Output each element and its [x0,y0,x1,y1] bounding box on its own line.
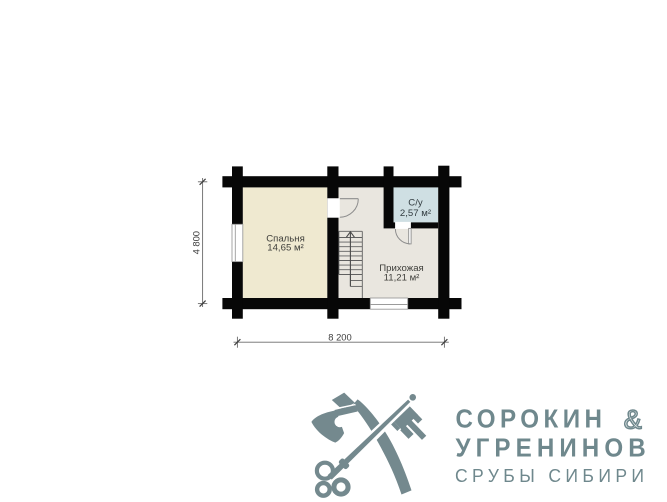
svg-text:4 800: 4 800 [190,231,201,254]
svg-text:СРУБЫ СИБИРИ: СРУБЫ СИБИРИ [455,465,644,486]
svg-text:2,57 м²: 2,57 м² [400,208,432,219]
svg-text:11,21 м²: 11,21 м² [384,272,421,283]
svg-text:&: & [624,404,642,434]
svg-text:СОРОКИН: СОРОКИН [456,405,602,434]
svg-text:УГРЕНИНОВ: УГРЕНИНОВ [456,434,646,463]
svg-text:14,65 м²: 14,65 м² [267,243,304,254]
svg-text:8 200: 8 200 [328,332,351,343]
